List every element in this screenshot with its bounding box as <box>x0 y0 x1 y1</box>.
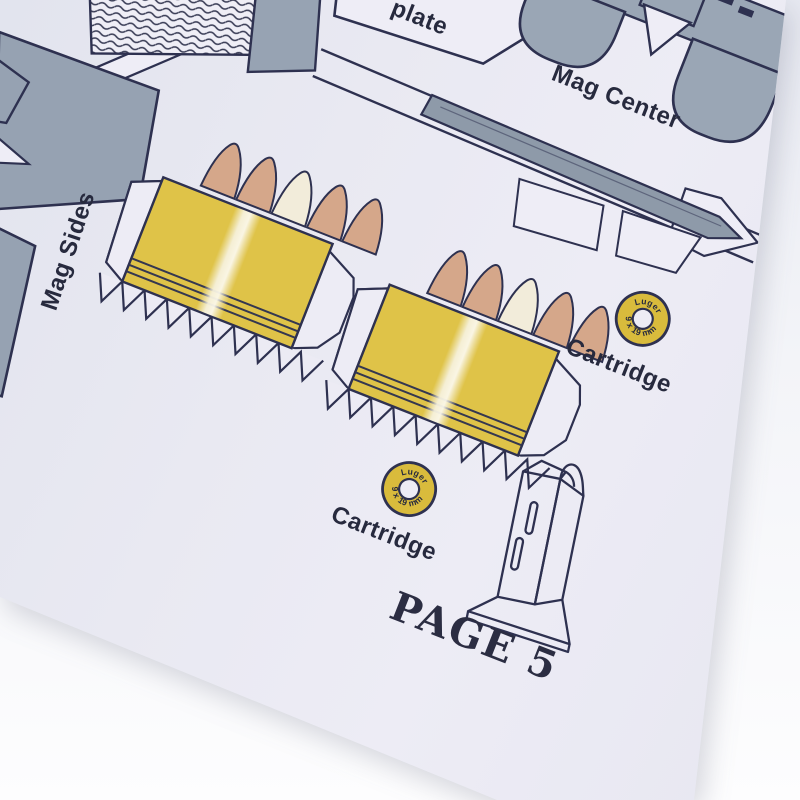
photo-backdrop: plate <box>0 0 800 800</box>
papercraft-sheet: plate <box>0 0 800 800</box>
page-number: PAGE 5 <box>384 583 566 691</box>
template-artwork: plate <box>0 0 800 800</box>
cartridge-roundel-lower: Luger 9 x 19 mm <box>375 455 444 524</box>
mag-center-part: Mag Center <box>498 0 800 164</box>
mag-sides-label: Mag Sides <box>36 188 101 313</box>
cartridge-roundel-right: Luger 9 x 19 mm <box>608 284 677 353</box>
mag-center-label: Mag Center <box>548 60 684 135</box>
paper-shadow-wrap: plate <box>0 0 800 800</box>
